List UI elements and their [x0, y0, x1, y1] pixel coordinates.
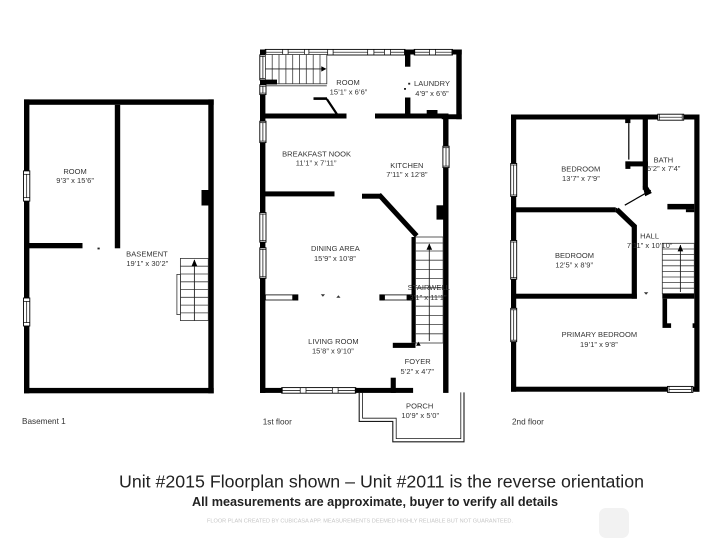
- svg-text:PORCH: PORCH: [406, 402, 433, 411]
- svg-text:All measurements are approxima: All measurements are approximate, buyer …: [192, 495, 558, 509]
- svg-text:4’9” x 6’6”: 4’9” x 6’6”: [415, 89, 449, 98]
- svg-text:5’2” x 7’4”: 5’2” x 7’4”: [647, 164, 681, 173]
- svg-text:BEDROOM: BEDROOM: [561, 165, 600, 174]
- svg-text:19’1” x 9’8”: 19’1” x 9’8”: [580, 340, 618, 349]
- svg-text:7’11” x 12’8”: 7’11” x 12’8”: [386, 170, 428, 179]
- svg-text:ROOM: ROOM: [63, 167, 87, 176]
- svg-text:10’9” x 5’0”: 10’9” x 5’0”: [401, 411, 439, 420]
- svg-text:1st floor: 1st floor: [263, 417, 292, 426]
- svg-text:BASEMENT: BASEMENT: [126, 249, 168, 258]
- svg-text:7’11” x 10’10”: 7’11” x 10’10”: [627, 241, 673, 250]
- svg-text:15’9” x 10’8”: 15’9” x 10’8”: [314, 254, 356, 263]
- svg-text:2nd floor: 2nd floor: [512, 417, 544, 426]
- svg-text:BEDROOM: BEDROOM: [555, 251, 594, 260]
- svg-text:HALL: HALL: [640, 231, 659, 240]
- svg-text:9’3” x 15’6”: 9’3” x 15’6”: [56, 176, 94, 185]
- svg-text:3’1” x 11’1”: 3’1” x 11’1”: [409, 293, 447, 302]
- svg-text:19’1” x 30’2”: 19’1” x 30’2”: [126, 259, 168, 268]
- svg-text:Unit #2015 Floorplan shown – U: Unit #2015 Floorplan shown – Unit #2011 …: [119, 472, 644, 492]
- svg-text:13’7” x 7’9”: 13’7” x 7’9”: [562, 174, 600, 183]
- svg-text:ROOM: ROOM: [336, 78, 360, 87]
- svg-text:5’2” x 4’7”: 5’2” x 4’7”: [400, 367, 434, 376]
- svg-text:12’5” x 8’9”: 12’5” x 8’9”: [555, 261, 593, 270]
- svg-text:LAUNDRY: LAUNDRY: [414, 79, 450, 88]
- svg-text:DINING AREA: DINING AREA: [311, 244, 360, 253]
- svg-text:BATH: BATH: [654, 155, 674, 164]
- svg-text:BREAKFAST NOOK: BREAKFAST NOOK: [282, 149, 351, 158]
- svg-text:LIVING ROOM: LIVING ROOM: [308, 337, 359, 346]
- svg-text:PRIMARY BEDROOM: PRIMARY BEDROOM: [562, 330, 638, 339]
- svg-text:KITCHEN: KITCHEN: [390, 161, 423, 170]
- svg-text:FLOOR PLAN CREATED BY CUBICASA: FLOOR PLAN CREATED BY CUBICASA APP. MEAS…: [207, 519, 513, 525]
- svg-text:STAIRWELL: STAIRWELL: [408, 283, 450, 292]
- svg-text:15’1” x 6’6”: 15’1” x 6’6”: [330, 88, 368, 97]
- svg-text:FOYER: FOYER: [405, 357, 432, 366]
- svg-text:15’8” x 9’10”: 15’8” x 9’10”: [312, 346, 354, 355]
- svg-text:Basement 1: Basement 1: [22, 417, 66, 426]
- svg-text:11’1” x 7’11”: 11’1” x 7’11”: [296, 159, 337, 168]
